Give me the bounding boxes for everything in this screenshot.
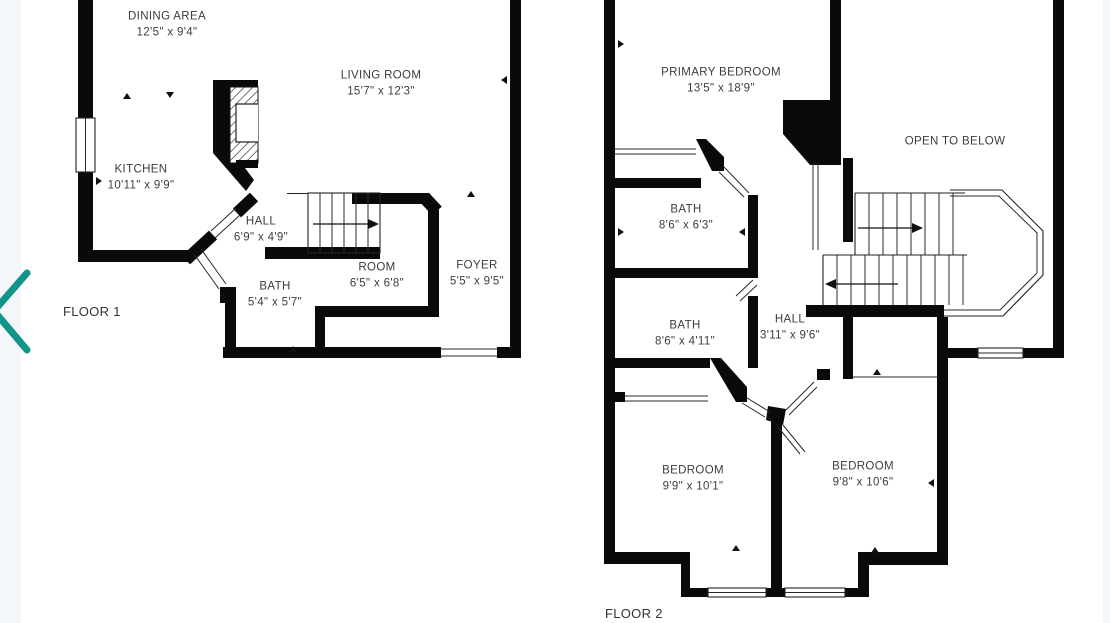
floor1-title: FLOOR 1 bbox=[63, 304, 121, 319]
floor2-title: FLOOR 2 bbox=[605, 606, 663, 621]
room-label-bath-f1: BATH5'4" x 5'7" bbox=[248, 280, 302, 311]
floorplan-drawing bbox=[0, 0, 1110, 623]
room-label-foyer: FOYER5'5" x 9'5" bbox=[450, 259, 504, 290]
room-label-bath-f2-lower: BATH8'6" x 4'11" bbox=[655, 319, 715, 350]
window bbox=[76, 118, 95, 172]
room-label-open-to-below: OPEN TO BELOW bbox=[905, 134, 1006, 150]
room-label-living-room: LIVING ROOM15'7" x 12'3" bbox=[341, 69, 422, 100]
room-label-bath-f2-upper: BATH8'6" x 6'3" bbox=[659, 203, 713, 234]
fireplace bbox=[213, 80, 258, 191]
carousel-prev-icon[interactable] bbox=[0, 273, 27, 350]
room-label-kitchen: KITCHEN10'11" x 9'9" bbox=[108, 163, 175, 194]
stairs-down-arrow-icon bbox=[825, 279, 836, 289]
floorplan-viewer: DINING AREA12'5" x 9'4" LIVING ROOM15'7"… bbox=[0, 0, 1110, 623]
staircase-floor2 bbox=[823, 190, 1043, 316]
floor1-dimension-ticks bbox=[96, 76, 507, 352]
room-label-hall-f1: HALL6'9" x 4'9" bbox=[234, 215, 288, 246]
stairs-up-arrow-icon bbox=[368, 219, 379, 229]
room-label-dining-area: DINING AREA12'5" x 9'4" bbox=[128, 10, 206, 41]
stairs-up-arrow-icon bbox=[912, 223, 923, 233]
room-label-bedroom-left: BEDROOM9'9" x 10'1" bbox=[662, 464, 724, 495]
room-label-room: ROOM6'5" x 6'8" bbox=[350, 261, 404, 292]
room-label-bedroom-right: BEDROOM9'8" x 10'6" bbox=[832, 460, 894, 491]
room-label-primary-bedroom: PRIMARY BEDROOM13'5" x 18'9" bbox=[661, 66, 781, 97]
room-label-hall-f2: HALL3'11" x 9'6" bbox=[760, 313, 820, 344]
